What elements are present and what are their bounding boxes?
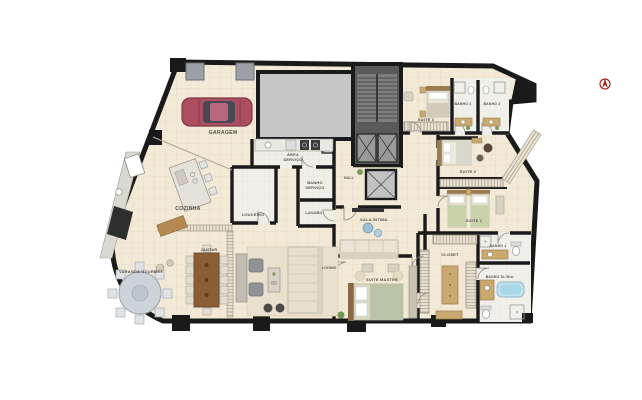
side-table bbox=[167, 260, 174, 267]
sofa-icon bbox=[340, 240, 398, 258]
label-jantar: JANTAR bbox=[201, 247, 218, 252]
label-area-servico-2: SERVIÇO bbox=[283, 157, 302, 162]
dryer-icon bbox=[311, 140, 320, 150]
wardrobe-icon bbox=[404, 122, 448, 131]
armchair-icon bbox=[249, 259, 263, 272]
label-banho-servico-2: SERVIÇO bbox=[305, 185, 324, 190]
floor-plan-canvas: GARAGEM ÁREA SERVIÇO COZINHA LOUCEIRO BA… bbox=[0, 0, 642, 400]
label-closet: CLOSET bbox=[441, 252, 459, 257]
wardrobe-icon bbox=[433, 235, 477, 244]
bathtub-icon bbox=[497, 282, 524, 297]
label-cozinha: COZINHA bbox=[175, 206, 200, 212]
common-core bbox=[353, 64, 401, 166]
sink-icon bbox=[265, 142, 271, 148]
label-banho-sr-sra: BANHO Sr./Sra. bbox=[486, 275, 515, 279]
double-bed-icon bbox=[426, 86, 450, 117]
label-louceiro: LOUCEIRO bbox=[242, 212, 265, 217]
label-garagem: GARAGEM bbox=[209, 130, 238, 136]
label-varanda-gourmet: VARANDA GOURMET bbox=[119, 269, 163, 274]
label-banho-3: BANHO 3 bbox=[454, 102, 471, 106]
wardrobe-icon bbox=[420, 250, 429, 313]
floor-plan-page: GARAGEM ÁREA SERVIÇO COZINHA LOUCEIRO BA… bbox=[0, 0, 642, 400]
armchair-icon bbox=[362, 264, 373, 272]
wardrobe-icon bbox=[440, 179, 503, 187]
label-suite-3: SUITE 3 bbox=[418, 117, 435, 122]
label-banho-2: BANHO 2 bbox=[483, 102, 500, 106]
round-rug bbox=[355, 271, 365, 281]
pouf-icon bbox=[363, 223, 373, 233]
private-elevator-icon bbox=[366, 170, 396, 199]
dresser-icon bbox=[472, 138, 482, 143]
nightstand-icon bbox=[466, 189, 471, 195]
room-hall bbox=[336, 166, 401, 207]
nightstand-icon bbox=[420, 87, 426, 93]
desk-icon bbox=[496, 196, 504, 214]
wardrobe-icon bbox=[466, 262, 476, 308]
pouf-icon bbox=[276, 304, 285, 313]
vanity-icon bbox=[482, 250, 508, 259]
label-sala-intima: SALA ÍNTIMA bbox=[360, 217, 388, 222]
label-suite-1: SUITE 1 bbox=[466, 218, 483, 223]
car-icon bbox=[182, 98, 252, 126]
sectional-sofa-icon bbox=[288, 247, 322, 313]
plant-icon bbox=[357, 169, 363, 175]
armchair-icon bbox=[249, 283, 263, 296]
washer-icon bbox=[300, 140, 309, 150]
laundry-counter bbox=[255, 139, 333, 151]
plant-icon bbox=[495, 126, 499, 130]
label-suite-master: SUITE MASTER bbox=[366, 277, 398, 282]
label-hall: HALL bbox=[344, 176, 354, 180]
pouf-icon bbox=[477, 155, 484, 162]
single-bed-icon bbox=[447, 190, 467, 227]
label-banho-1: BANHO 1 bbox=[489, 244, 506, 248]
king-bed-icon bbox=[348, 283, 403, 321]
plant-icon bbox=[338, 312, 345, 319]
double-bed-icon bbox=[437, 140, 471, 166]
living-set bbox=[236, 247, 338, 316]
pouf-icon bbox=[484, 144, 493, 153]
bench bbox=[436, 311, 462, 319]
toilet-icon bbox=[483, 86, 489, 94]
pouf-icon bbox=[264, 304, 273, 313]
tv-icon bbox=[352, 208, 384, 212]
label-lavabo: LAVABO bbox=[305, 210, 322, 215]
plant-icon bbox=[466, 126, 470, 130]
pouf-icon bbox=[374, 229, 381, 236]
sink-icon bbox=[116, 189, 122, 195]
tv-console bbox=[409, 266, 417, 318]
technical-shaft bbox=[258, 72, 353, 139]
shelving-unit bbox=[236, 254, 247, 302]
label-suite-2: SUITE 2 bbox=[460, 169, 477, 174]
label-living: LIVING bbox=[322, 265, 336, 270]
coffee-table bbox=[268, 268, 280, 292]
toilet-icon bbox=[468, 86, 474, 94]
armchair-icon bbox=[404, 92, 413, 101]
north-compass-icon bbox=[600, 79, 610, 90]
stairs-icon bbox=[357, 74, 397, 122]
